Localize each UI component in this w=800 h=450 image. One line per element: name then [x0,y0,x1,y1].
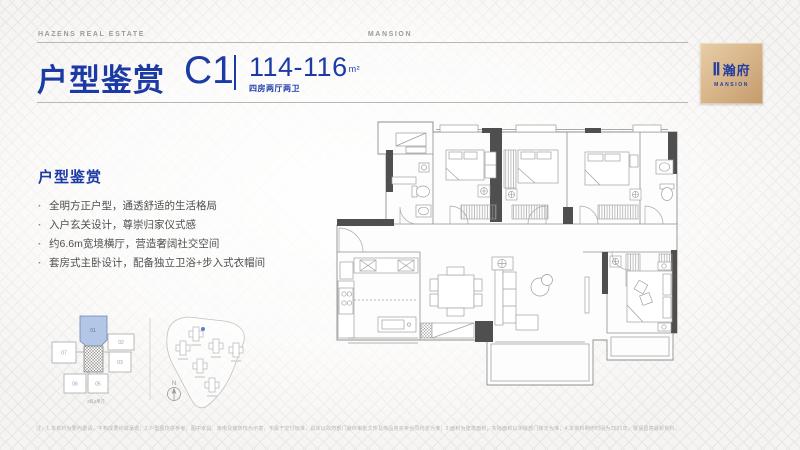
keyplan-core [84,346,103,372]
area-unit: m² [349,64,361,74]
keyplan-caption: 2栋2单元 [87,398,105,405]
siteplan: N [167,317,245,408]
logo-name-cn: 瀚府 [723,60,751,79]
svg-text:01: 01 [90,328,96,334]
feature-item: 入户玄关设计，尊崇归家仪式感 [38,216,328,235]
feature-section: 户型鉴赏 全明方正户型，通透舒适的生活格局 入户玄关设计，尊崇归家仪式感 约6.… [38,166,328,273]
brand-left: HAZENS REAL ESTATE [38,31,145,38]
entry-icons [421,323,474,338]
title-divider [234,55,236,90]
feature-heading: 户型鉴赏 [38,166,328,187]
page-title: 户型鉴赏 [37,55,165,100]
logo-name-en: MANSION [714,82,749,88]
svg-text:05: 05 [95,382,101,388]
project-logo: Ⅱ 瀚府 MANSION [700,43,763,104]
siteplan-current-building-dot [201,327,205,331]
area-range: 114-116m² [249,52,360,82]
logo-row: Ⅱ 瀚府 [712,60,750,80]
svg-text:07: 07 [61,351,67,357]
layout-subtitle: 四房两厅两卫 [249,83,360,94]
svg-text:03: 03 [117,360,123,366]
unit-code: C1 [184,49,234,93]
slide-background: HAZENS REAL ESTATE MANSION 户型鉴赏 C1 114-1… [0,0,800,450]
north-compass-icon: N [168,381,181,401]
feature-item: 约6.6m宽境横厅，营造奢阔社交空间 [38,235,328,254]
svg-text:06: 06 [72,382,78,388]
floorplan [330,108,698,408]
feature-item: 全明方正户型，通透舒适的生活格局 [38,197,328,216]
keyplan-siteplan: 01 02 03 05 06 07 2栋2单元 [40,296,285,428]
title-block: 户型鉴赏 C1 114-116m² 四房两厅两卫 [37,52,377,104]
header-divider-top [37,42,688,43]
svg-text:N: N [172,381,176,387]
area-block: 114-116m² 四房两厅两卫 [249,52,360,94]
disclaimer-text: 注：1.本资料为要约邀请，不构成要约或承诺；2.户型图仅供参考，图中家具、家电及… [36,425,764,432]
logo-roman-numeral: Ⅱ [712,60,720,80]
feature-item: 套房式主卧设计，配备独立卫浴+步入式衣帽间 [38,254,328,273]
svg-text:02: 02 [118,340,124,346]
feature-list: 全明方正户型，通透舒适的生活格局 入户玄关设计，尊崇归家仪式感 约6.6m宽境横… [38,197,328,273]
brand-center: MANSION [330,31,450,38]
